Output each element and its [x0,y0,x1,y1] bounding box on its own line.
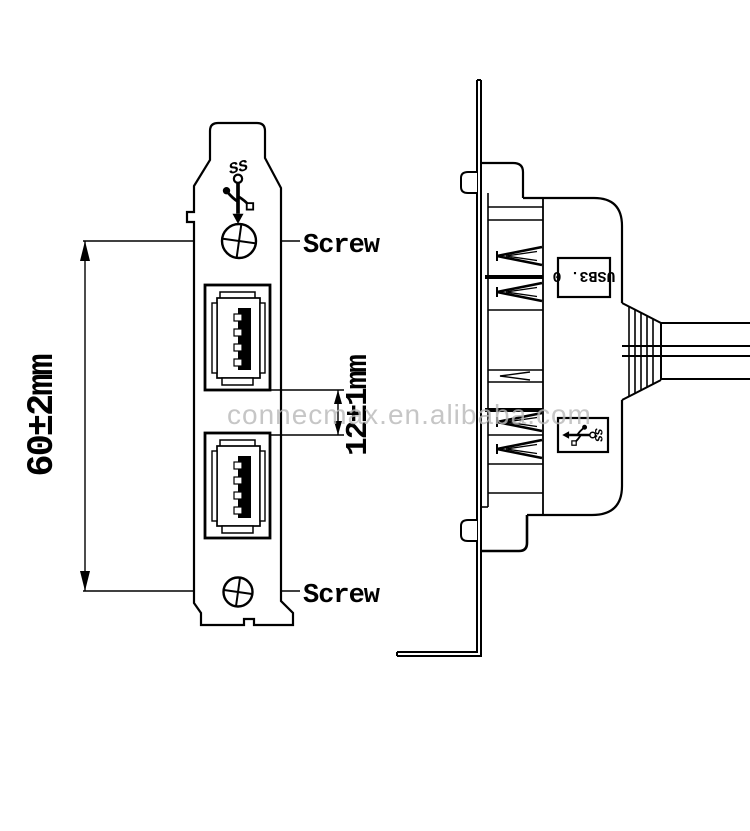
cable-strain-relief [622,303,661,400]
side-view: USB3. 0 SS [397,80,750,656]
arrow-up-icon [80,241,90,261]
dimension-height-label: 60±2mm [22,355,64,477]
screw-label-top: Screw [303,231,381,261]
screw-tab-bottom-side [461,520,477,541]
spring-contact-icon [497,283,542,301]
screw-tab-top-side [461,172,477,193]
usb-version-label: USB3. 0 [552,267,615,284]
usb3-bracket-dimension-drawing: 60±2mm SS Screw 12±1mm [0,0,750,831]
technical-drawing-page: 60±2mm SS Screw 12±1mm [0,0,750,831]
ss-text-side: SS [591,428,603,442]
arrow-down-icon [80,571,90,591]
usb-port-top [205,285,270,390]
spring-contact-icon [497,247,542,265]
usb3-label-box: USB3. 0 [552,258,615,297]
contact-block-bottom [485,370,543,493]
screw-label-bottom: Screw [303,581,381,611]
usb-port-bottom [205,433,270,538]
spring-contact-icon [497,440,542,458]
watermark: connecmax.en.alibaba.com [227,399,592,430]
contact-block-top [485,207,543,310]
bracket-plate-side [397,80,481,656]
front-view: 60±2mm SS Screw 12±1mm [22,123,381,625]
